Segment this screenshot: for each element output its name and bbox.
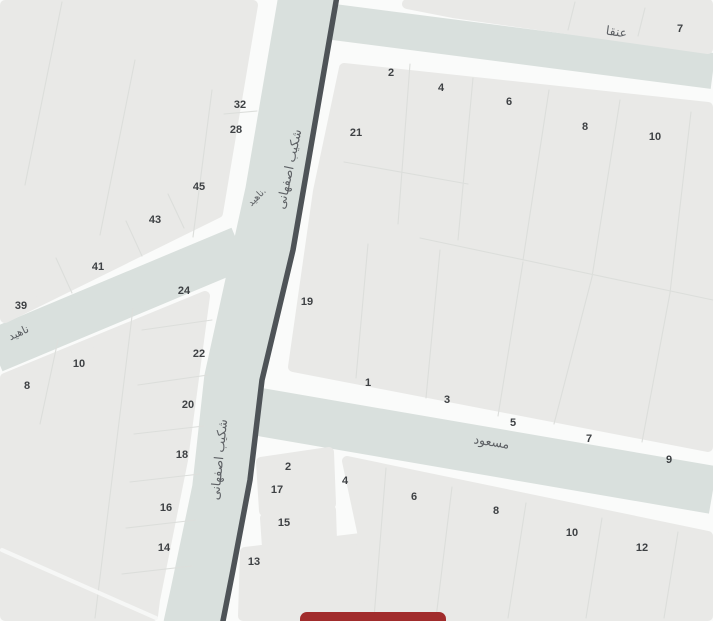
plot-number: 13 (248, 556, 260, 568)
plot-number: 21 (350, 127, 362, 139)
plot-number: 19 (301, 296, 313, 308)
plot-number: 2 (285, 461, 291, 473)
plot-number: 43 (149, 214, 161, 226)
plot-number: 7 (586, 433, 592, 445)
plot-number: 45 (193, 181, 205, 193)
plot-number: 17 (271, 484, 283, 496)
plot-number: 2 (388, 67, 394, 79)
plot-number: 32 (234, 99, 246, 111)
plot-number: 4 (438, 82, 445, 94)
plot-number: 16 (160, 502, 172, 514)
plot-number: 39 (15, 300, 27, 312)
plot-number: 1 (365, 377, 371, 389)
plot-number: 3 (444, 394, 450, 406)
plot-number: 18 (176, 449, 188, 461)
plot-number: 6 (411, 491, 417, 503)
plot-number: 15 (278, 517, 290, 529)
plot-number: 14 (158, 542, 171, 554)
plot-number: 4 (342, 475, 349, 487)
plot-number: 28 (230, 124, 242, 136)
plot-number: 10 (649, 131, 661, 143)
plot-block-13 (243, 538, 371, 616)
plot-number: 41 (92, 261, 104, 273)
plot-block-17 (261, 452, 331, 511)
plot-number: 8 (493, 505, 499, 517)
plot-number: 20 (182, 399, 194, 411)
plot-number: 24 (178, 285, 191, 297)
plot-number: 6 (506, 96, 512, 108)
plot-number: 10 (566, 527, 578, 539)
plot-number: 8 (582, 121, 588, 133)
plot-number: 12 (636, 542, 648, 554)
plot-number: 5 (510, 417, 516, 429)
plot-number: 10 (73, 358, 85, 370)
plot-number: 7 (677, 23, 683, 35)
selected-location-marker[interactable] (300, 612, 446, 621)
street-label-anqa: عنقا (605, 23, 628, 41)
plot-number: 22 (193, 348, 205, 360)
map-canvas[interactable]: شکیب اصفهانی ناهید. شکیب اصفهانی ناهید ع… (0, 0, 713, 621)
plot-number: 8 (24, 380, 30, 392)
plot-number: 9 (666, 454, 672, 466)
